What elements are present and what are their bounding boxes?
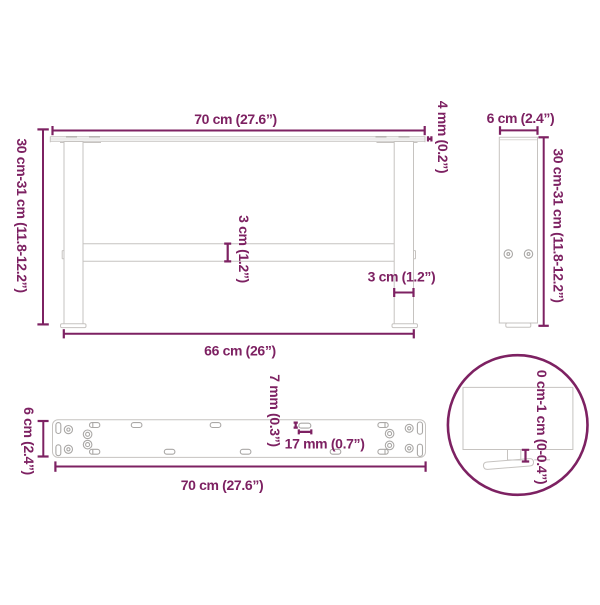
svg-text:70 cm (27.6”): 70 cm (27.6”): [194, 111, 277, 127]
svg-text:7 mm (0.3”): 7 mm (0.3”): [267, 374, 283, 446]
svg-text:4 mm (0.2”): 4 mm (0.2”): [435, 101, 451, 173]
svg-text:6 cm (2.4”): 6 cm (2.4”): [21, 407, 37, 475]
svg-text:30 cm-31 cm (11.8-12.2”): 30 cm-31 cm (11.8-12.2”): [14, 138, 30, 292]
svg-text:70 cm (27.6”): 70 cm (27.6”): [181, 477, 264, 493]
svg-text:6 cm (2.4”): 6 cm (2.4”): [487, 110, 555, 126]
svg-text:3 cm (1.2”): 3 cm (1.2”): [368, 269, 436, 285]
svg-text:66 cm (26”): 66 cm (26”): [204, 343, 276, 359]
svg-text:0 cm-1 cm (0-0.4”): 0 cm-1 cm (0-0.4”): [534, 370, 550, 484]
svg-text:30 cm-31 cm (11.8-12.2”): 30 cm-31 cm (11.8-12.2”): [550, 148, 566, 302]
svg-text:17 mm (0.7”): 17 mm (0.7”): [285, 436, 365, 452]
svg-text:3 cm (1.2”): 3 cm (1.2”): [236, 215, 252, 283]
